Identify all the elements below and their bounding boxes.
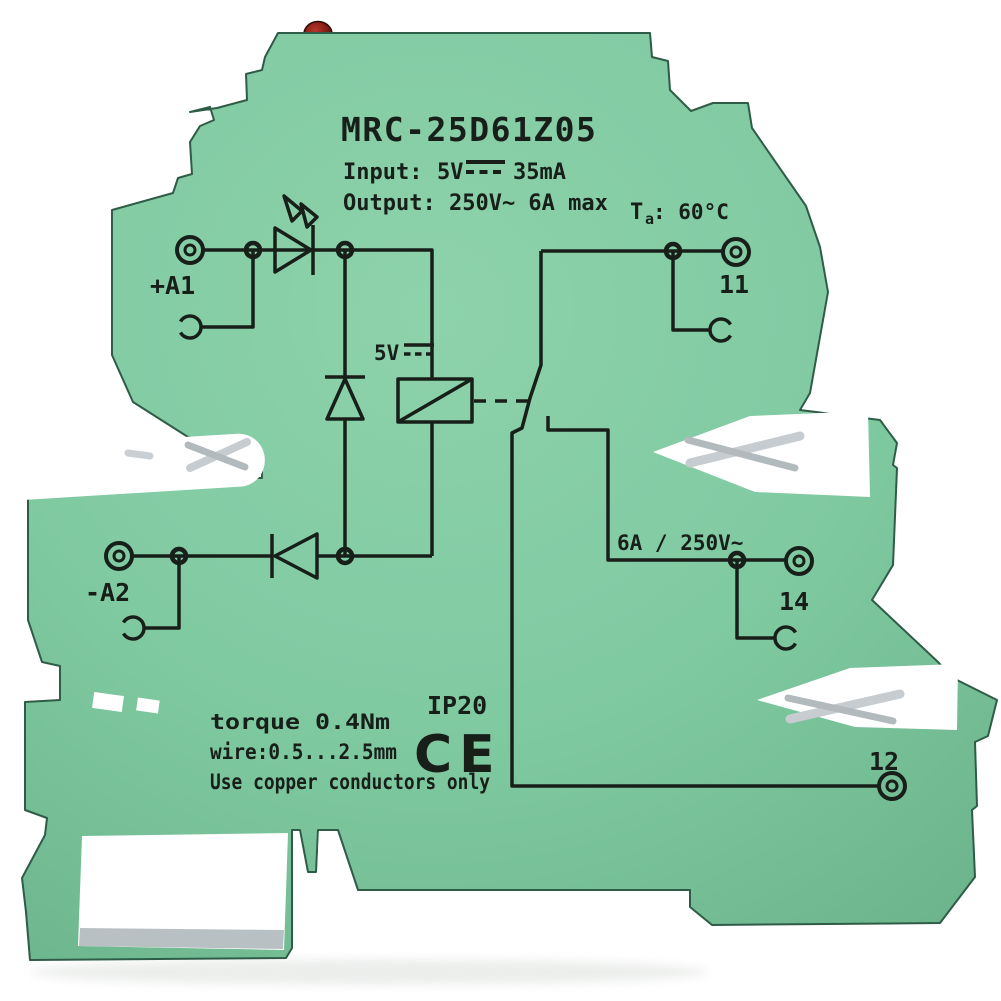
input-label: Input:: [343, 160, 422, 185]
input-voltage: 5V: [437, 160, 464, 185]
housing-body: [22, 33, 997, 960]
copper-note: Use copper conductors only: [210, 770, 490, 794]
relay-module-canvas: MRC-25D61Z05 Input: 5V 35mA Output: 250V…: [0, 0, 1001, 1001]
ambient-temp-prefix: T: [630, 200, 643, 225]
contact-rating-label: 6A / 250V~: [617, 531, 743, 555]
ip-rating: IP20: [427, 691, 487, 720]
wire-range-note: wire:0.5...2.5mm: [210, 740, 397, 764]
din-rail-slot: [78, 833, 332, 950]
relay-module-photo: MRC-25D61Z05 Input: 5V 35mA Output: 250V…: [0, 0, 1001, 1001]
label-terminal-14: 14: [779, 587, 809, 616]
label-terminal-a2: -A2: [85, 578, 130, 607]
output-spec: Output: 250V~ 6A max: [343, 191, 608, 216]
label-terminal-11: 11: [719, 270, 749, 299]
label-terminal-12: 12: [869, 747, 899, 776]
input-current: 35mA: [513, 160, 566, 185]
model-number: MRC-25D61Z05: [341, 110, 597, 149]
torque-note: torque 0.4Nm: [210, 710, 390, 734]
label-terminal-a1: +A1: [150, 271, 195, 300]
coil-voltage-label: 5V: [374, 341, 400, 365]
ambient-temp-value: : 60°C: [653, 200, 729, 224]
ground-shadow: [30, 959, 710, 985]
